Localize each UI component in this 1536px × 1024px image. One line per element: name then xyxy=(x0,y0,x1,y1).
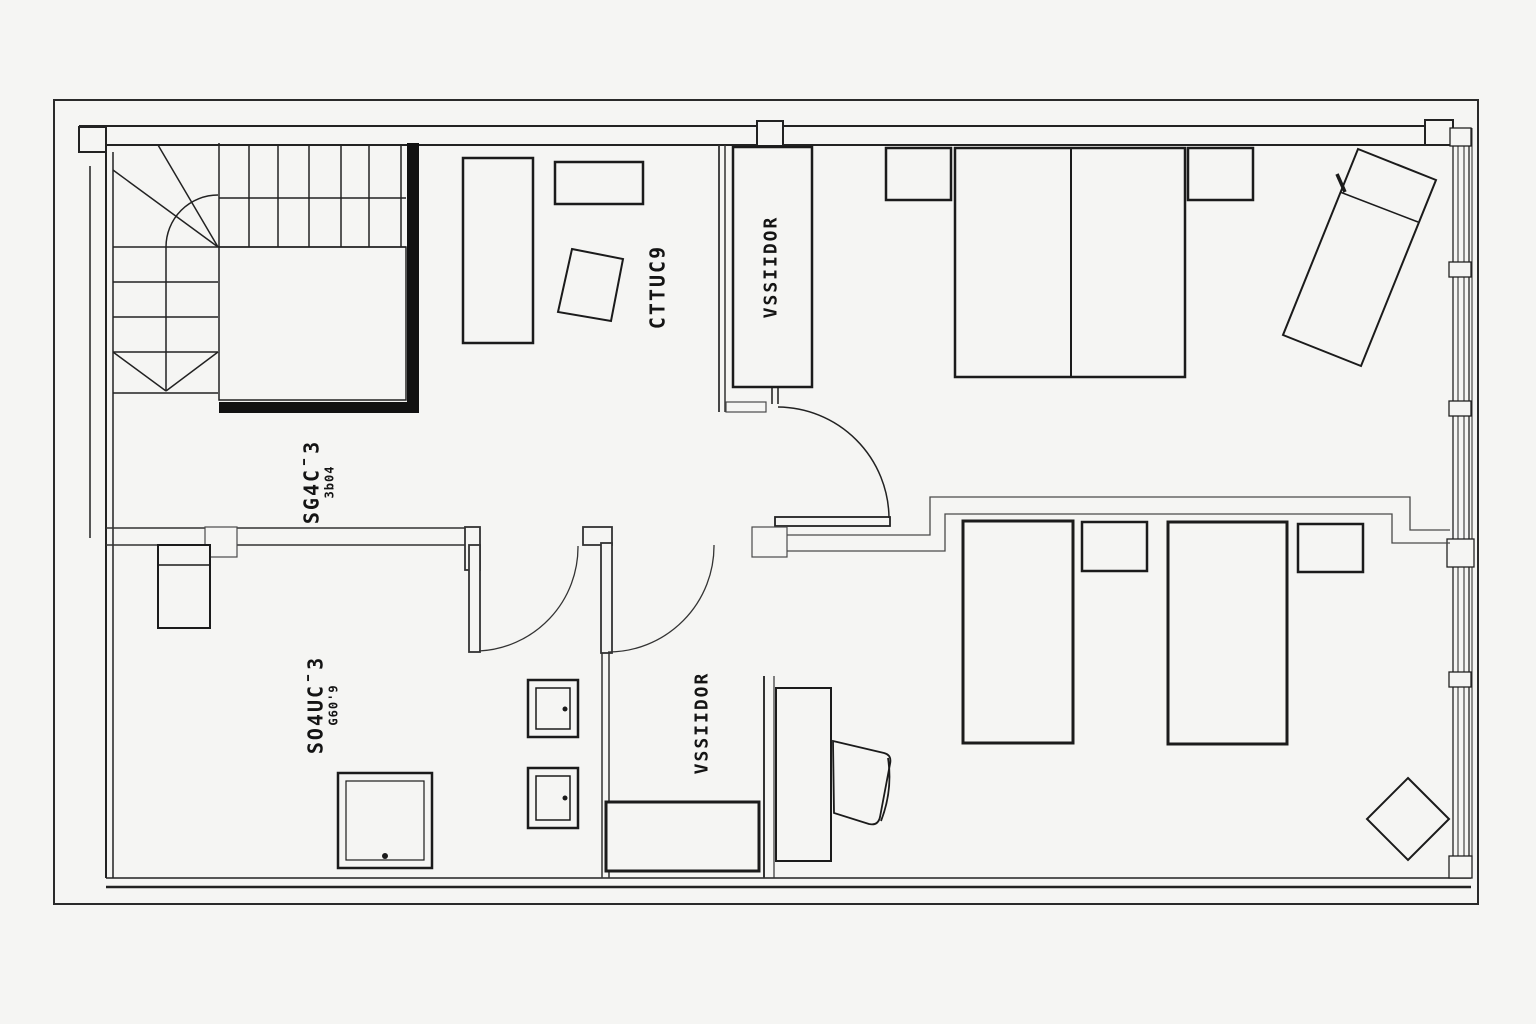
rotated-bed xyxy=(1283,149,1436,366)
staircase xyxy=(113,143,419,413)
door-leaf xyxy=(775,517,890,526)
study-shelf xyxy=(555,162,643,204)
room-label-left-main: SG4C¯3 xyxy=(301,440,324,524)
wall-stub xyxy=(726,402,766,412)
lower-left-furniture xyxy=(158,545,432,868)
bedroom1-door xyxy=(775,407,890,526)
room-label-dressing: VSSIIDOR xyxy=(762,216,783,319)
wall-post xyxy=(752,527,787,557)
room-label-lower-left-sub: G60'9 xyxy=(328,656,342,754)
window-mullion xyxy=(1447,539,1474,567)
nightstand xyxy=(886,148,951,200)
room-label-lower-left-main: SO4UC¯3 xyxy=(305,656,328,754)
floor-plan-drawing xyxy=(0,0,1536,1024)
door-swing-arc xyxy=(608,545,714,652)
wall-post xyxy=(1425,120,1453,145)
window-post xyxy=(1450,128,1471,146)
bedroom1-furniture xyxy=(886,148,1436,377)
window-mullion xyxy=(1449,401,1471,416)
washing-machine-inner xyxy=(346,781,424,860)
study-furniture xyxy=(463,158,643,343)
study-desk xyxy=(463,158,533,343)
stair-wall xyxy=(407,143,419,413)
single-bed xyxy=(1168,522,1287,744)
window-post xyxy=(1449,856,1472,878)
floor-plan: CTTUC9 VSSIIDOR VSSIIDOR SG4C¯3 3b04 SO4… xyxy=(0,0,1536,1024)
study-chair xyxy=(558,249,623,321)
room-label-left: SG4C¯3 3b04 xyxy=(301,440,338,524)
nightstand xyxy=(1188,148,1253,200)
room-label-corridor: VSSIIDOR xyxy=(693,672,714,775)
door-swing-arc xyxy=(479,546,578,651)
wall-post xyxy=(79,127,106,152)
corridor-furniture xyxy=(606,688,890,871)
nightstand xyxy=(1082,522,1147,571)
wall-cabinets xyxy=(528,680,578,828)
nightstand xyxy=(1298,524,1363,572)
sideboard xyxy=(606,802,759,871)
stair-winder-line xyxy=(113,170,218,247)
right-window-strip xyxy=(1447,128,1474,878)
desk-chair xyxy=(833,741,890,824)
window-mullion xyxy=(1449,672,1471,687)
cabinet xyxy=(158,545,210,628)
stair-arrow xyxy=(113,352,166,391)
stair-arrow xyxy=(166,352,218,391)
door-swing-arc xyxy=(778,407,889,518)
room-label-left-sub: 3b04 xyxy=(324,440,338,524)
room-label-study: CTTUC9 xyxy=(647,245,670,329)
door-leaf xyxy=(469,545,480,652)
stair-wall xyxy=(219,402,419,413)
rotated-table xyxy=(1367,778,1449,860)
single-bed xyxy=(963,521,1073,743)
wall-post xyxy=(757,121,783,146)
window-mullion xyxy=(1449,262,1471,277)
desk xyxy=(776,688,831,861)
stair-landing xyxy=(219,247,406,400)
bedroom2-furniture xyxy=(963,521,1449,860)
room-label-lower-left: SO4UC¯3 G60'9 xyxy=(305,656,342,754)
door-leaf xyxy=(601,543,612,653)
